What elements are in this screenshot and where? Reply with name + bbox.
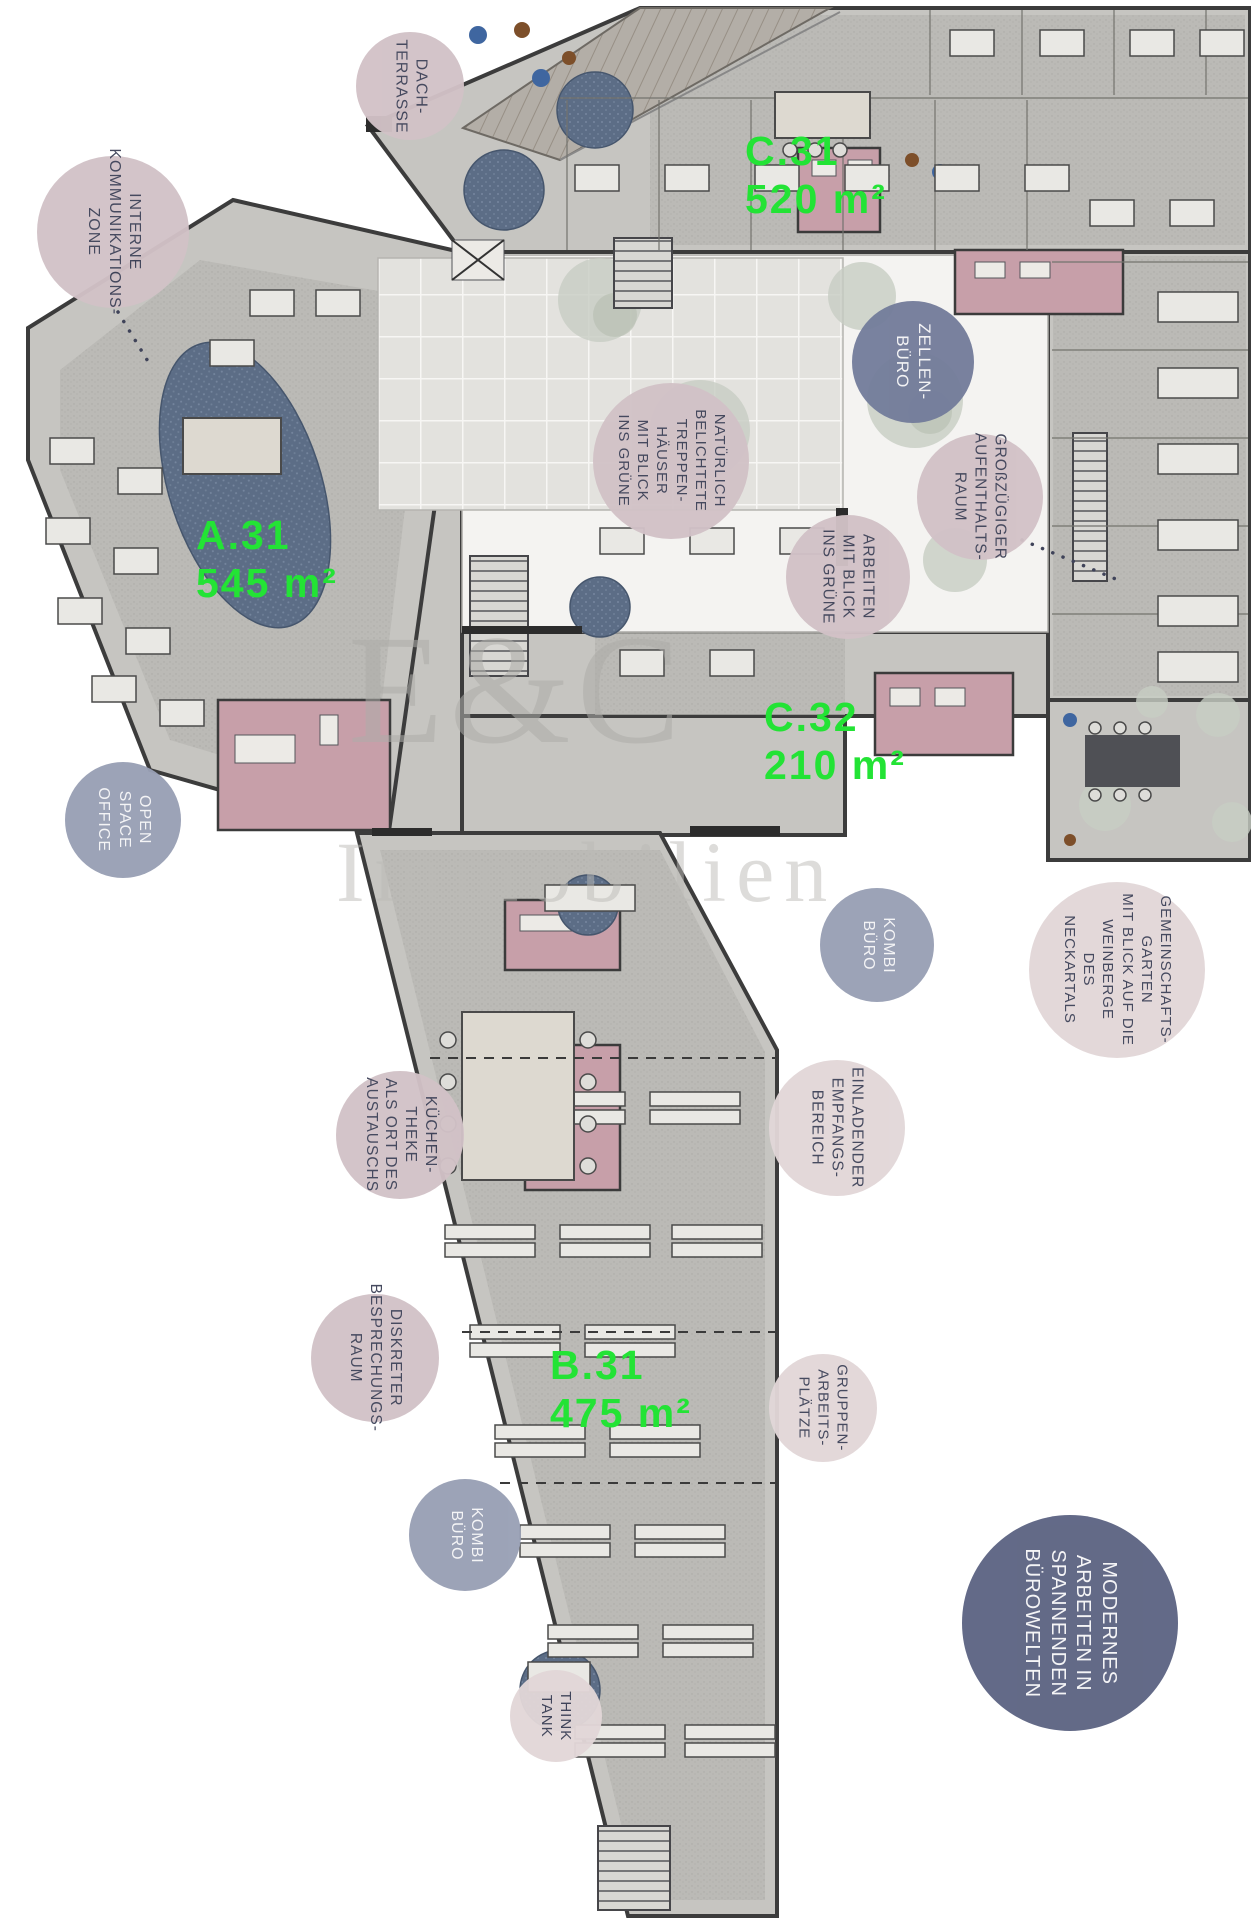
floor-plan [0,0,1251,1920]
garden [1048,686,1251,860]
floorplan-page: E&C Immobilien DACH-TERRASSEINTERNEKOMMU… [0,0,1251,1920]
